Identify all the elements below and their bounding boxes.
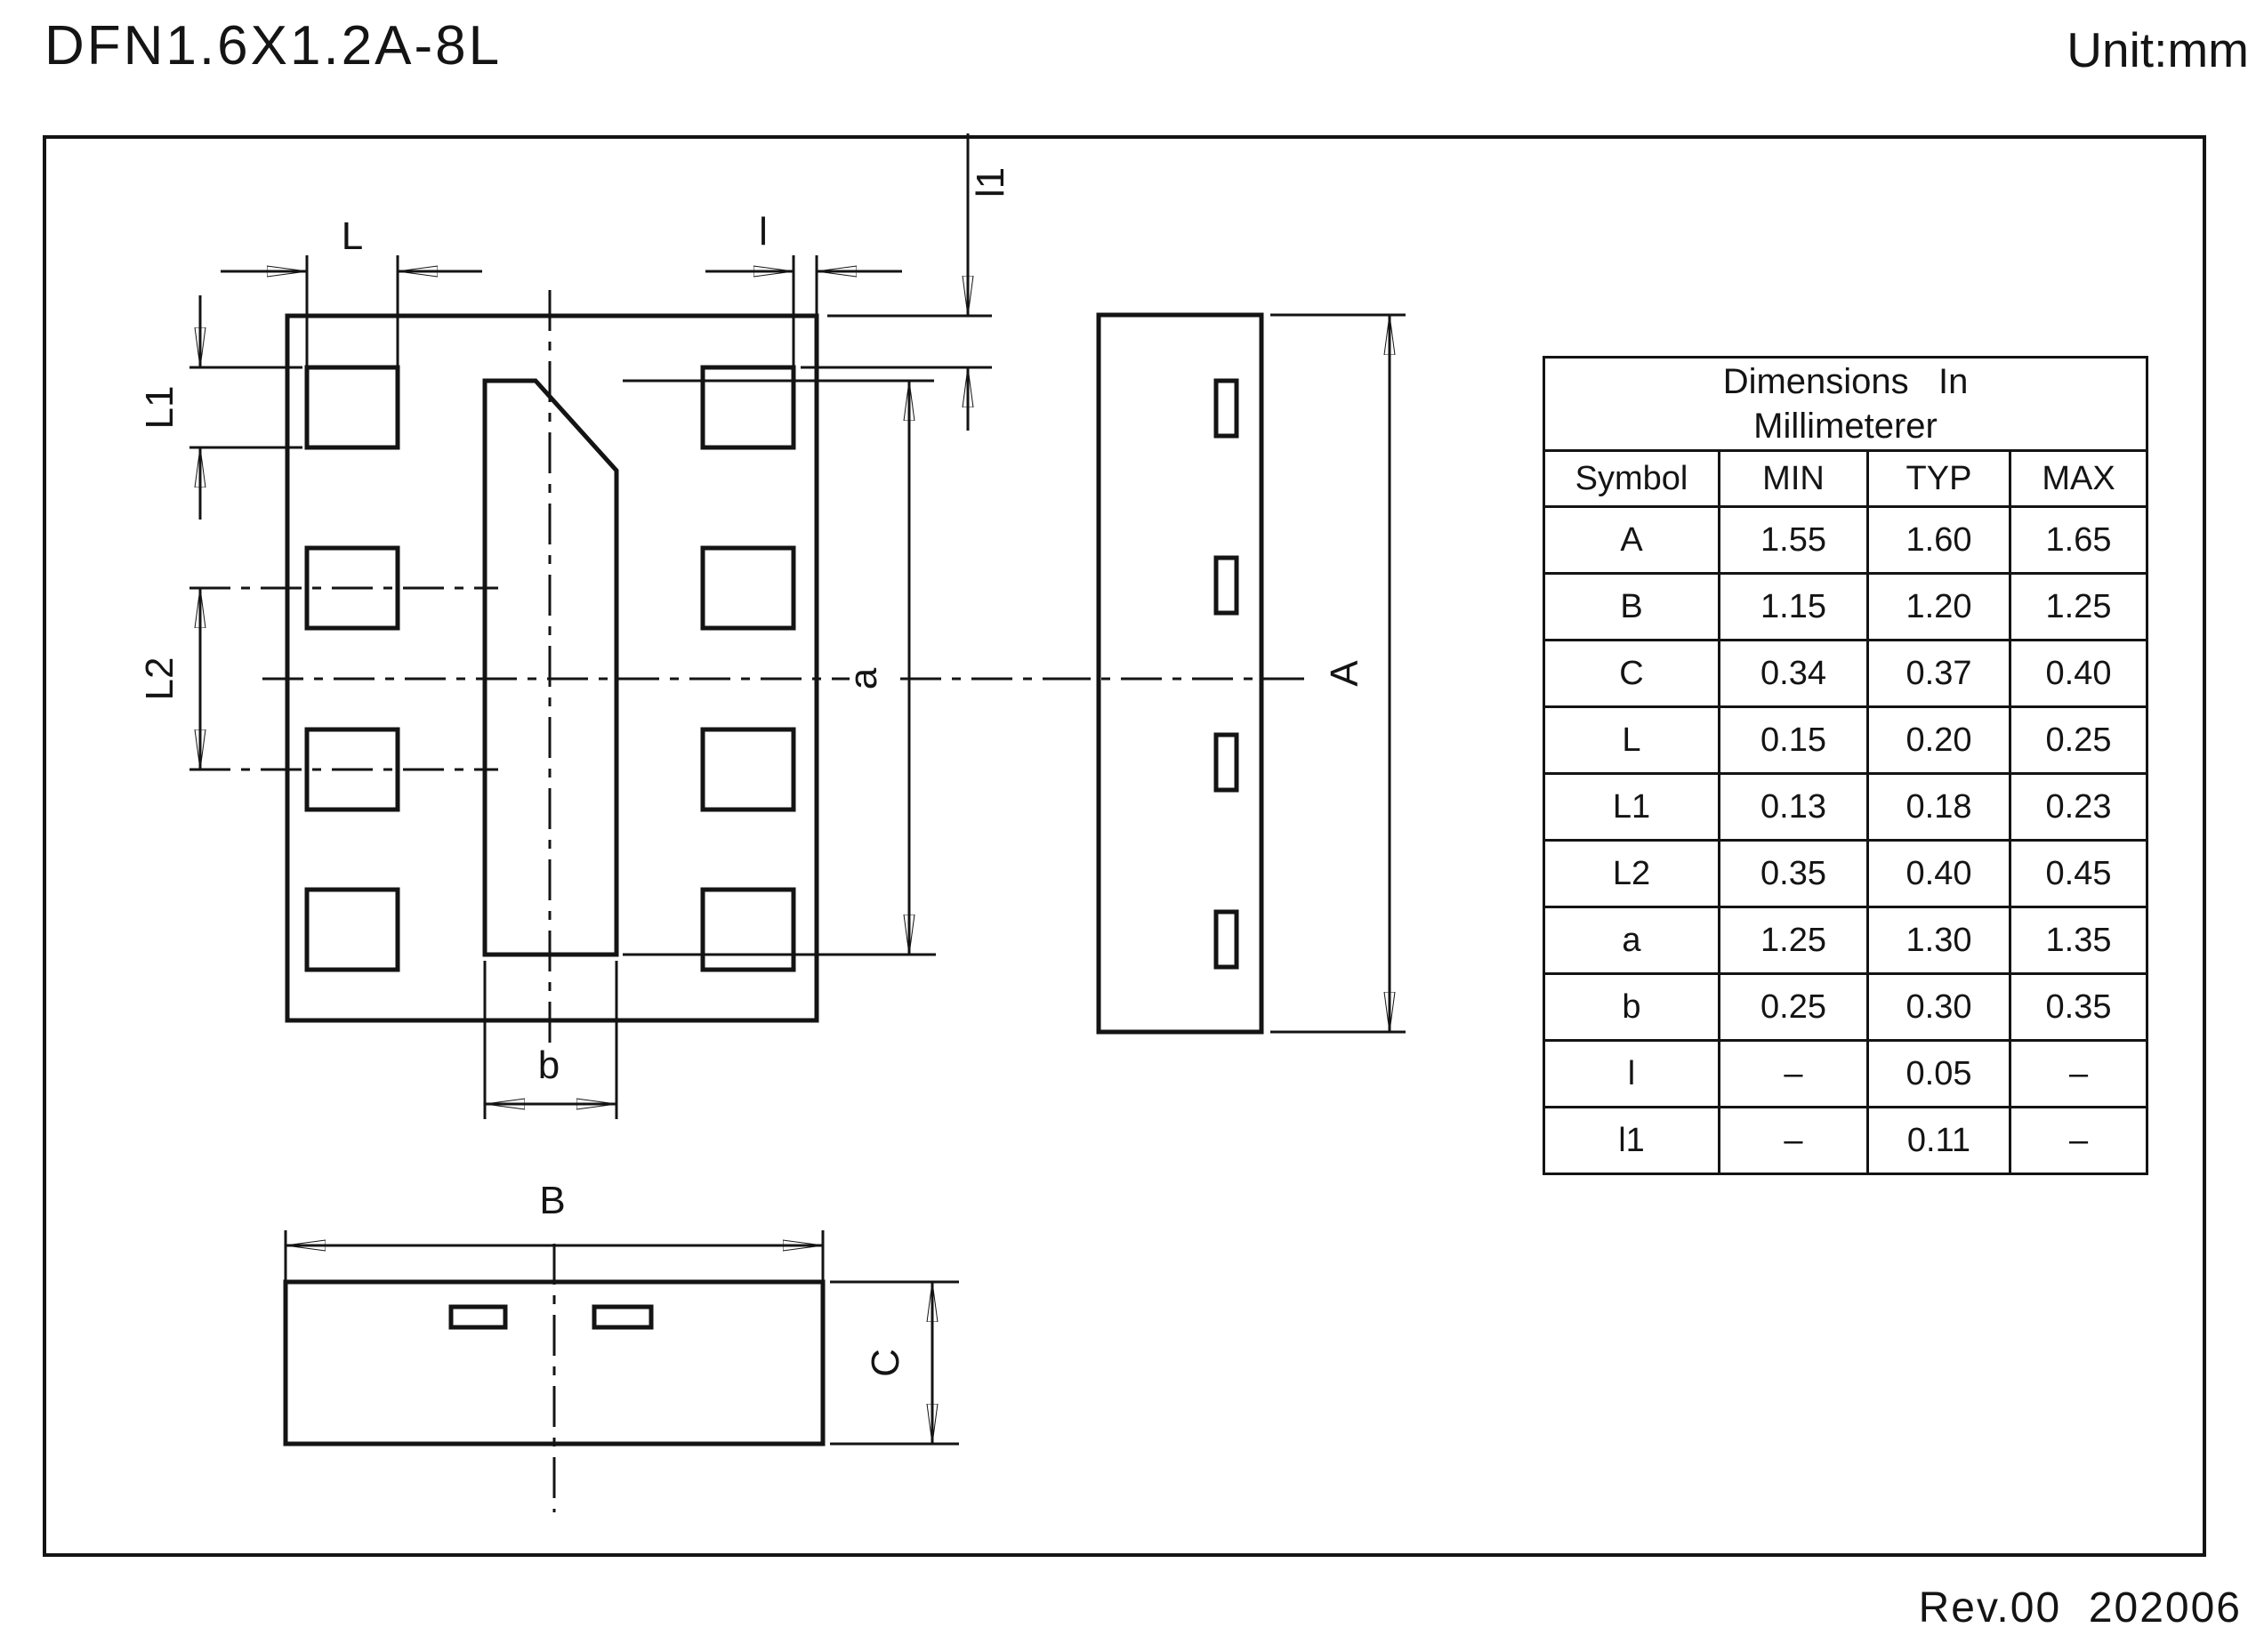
table-cell: 0.25 bbox=[2010, 707, 2147, 774]
dim-label-l: l bbox=[759, 210, 768, 254]
table-cell: l bbox=[1544, 1041, 1720, 1108]
table-row: L2 0.35 0.40 0.45 bbox=[1544, 841, 2147, 907]
bottom-pad bbox=[451, 1307, 505, 1327]
table-cell: 1.65 bbox=[2010, 507, 2147, 574]
dim-label-L1: L1 bbox=[138, 386, 181, 430]
pad bbox=[703, 548, 794, 628]
dim-L1: L1 bbox=[138, 295, 302, 520]
revision-label: Rev.00 202006 bbox=[1919, 1584, 2242, 1632]
table-cell: 0.15 bbox=[1720, 707, 1868, 774]
table-row: B 1.15 1.20 1.25 bbox=[1544, 574, 2147, 641]
table-row: a 1.25 1.30 1.35 bbox=[1544, 907, 2147, 974]
pad bbox=[307, 367, 398, 447]
dim-L: L bbox=[221, 214, 482, 367]
bottom-view bbox=[286, 1244, 823, 1512]
table-cell: B bbox=[1544, 574, 1720, 641]
dim-label-C: C bbox=[864, 1349, 907, 1377]
column-header-min: MIN bbox=[1720, 451, 1868, 507]
table-cell: 0.05 bbox=[1868, 1041, 2010, 1108]
table-cell: 0.35 bbox=[2010, 974, 2147, 1041]
table-cell: 0.30 bbox=[1868, 974, 2010, 1041]
table-cell: – bbox=[1720, 1041, 1868, 1108]
side-pad bbox=[1216, 381, 1237, 436]
table-header-row: Symbol MIN TYP MAX bbox=[1544, 451, 2147, 507]
dim-label-A: A bbox=[1323, 660, 1366, 687]
package-outline bbox=[287, 316, 817, 1020]
table-cell: 1.20 bbox=[1868, 574, 2010, 641]
bottom-pad bbox=[594, 1307, 651, 1327]
table-cell: 0.18 bbox=[1868, 774, 2010, 841]
table-cell: 1.60 bbox=[1868, 507, 2010, 574]
table-row: b 0.25 0.30 0.35 bbox=[1544, 974, 2147, 1041]
dim-label-a: a bbox=[842, 667, 885, 689]
dim-l1: l1 bbox=[801, 133, 1012, 431]
table-cell: 0.40 bbox=[1868, 841, 2010, 907]
table-cell: – bbox=[2010, 1108, 2147, 1174]
table-caption-line2: Millimeterer bbox=[1545, 404, 2146, 448]
table-cell: 0.25 bbox=[1720, 974, 1868, 1041]
dim-l: l bbox=[705, 210, 902, 367]
table-cell: 1.25 bbox=[1720, 907, 1868, 974]
table-row: A 1.55 1.60 1.65 bbox=[1544, 507, 2147, 574]
table-cell: L bbox=[1544, 707, 1720, 774]
table-cell: 0.20 bbox=[1868, 707, 2010, 774]
table-row: l1 – 0.11 – bbox=[1544, 1108, 2147, 1174]
table-cell: b bbox=[1544, 974, 1720, 1041]
column-header-max: MAX bbox=[2010, 451, 2147, 507]
table-cell: L2 bbox=[1544, 841, 1720, 907]
table-cell: 1.55 bbox=[1720, 507, 1868, 574]
table-row: l – 0.05 – bbox=[1544, 1041, 2147, 1108]
table-caption: Dimensions In Millimeterer bbox=[1544, 358, 2147, 451]
table-cell: L1 bbox=[1544, 774, 1720, 841]
side-view bbox=[1050, 315, 1312, 1032]
side-pad bbox=[1216, 912, 1237, 967]
table-cell: A bbox=[1544, 507, 1720, 574]
pad bbox=[703, 729, 794, 810]
table-cell: 0.37 bbox=[1868, 641, 2010, 707]
dim-label-L: L bbox=[342, 214, 363, 258]
dim-label-L2: L2 bbox=[138, 657, 181, 701]
table-cell: l1 bbox=[1544, 1108, 1720, 1174]
table-cell: 0.35 bbox=[1720, 841, 1868, 907]
table-cell: – bbox=[1720, 1108, 1868, 1174]
table-cell: 0.11 bbox=[1868, 1108, 2010, 1174]
table-cell: 0.23 bbox=[2010, 774, 2147, 841]
column-header-symbol: Symbol bbox=[1544, 451, 1720, 507]
dim-label-B: B bbox=[539, 1179, 565, 1222]
top-view bbox=[189, 290, 1054, 1043]
drawing-sheet: DFN1.6X1.2A-8L Unit:mm bbox=[0, 0, 2256, 1652]
column-header-typ: TYP bbox=[1868, 451, 2010, 507]
dim-L2: L2 bbox=[138, 588, 200, 770]
table-cell: – bbox=[2010, 1041, 2147, 1108]
table-cell: C bbox=[1544, 641, 1720, 707]
dimensions-table: Dimensions In Millimeterer Symbol MIN TY… bbox=[1543, 356, 2148, 1175]
table-caption-line1: Dimensions In bbox=[1545, 359, 2146, 404]
table-cell: 1.25 bbox=[2010, 574, 2147, 641]
table-cell: 0.13 bbox=[1720, 774, 1868, 841]
table-cell: 1.35 bbox=[2010, 907, 2147, 974]
side-pad bbox=[1216, 558, 1237, 613]
table-cell: 1.15 bbox=[1720, 574, 1868, 641]
table-cell: 0.45 bbox=[2010, 841, 2147, 907]
dim-C: C bbox=[830, 1282, 959, 1444]
pad bbox=[307, 890, 398, 970]
table-cell: 1.30 bbox=[1868, 907, 2010, 974]
table-caption-row: Dimensions In Millimeterer bbox=[1544, 358, 2147, 451]
table-row: C 0.34 0.37 0.40 bbox=[1544, 641, 2147, 707]
table-row: L 0.15 0.20 0.25 bbox=[1544, 707, 2147, 774]
table-cell: 0.34 bbox=[1720, 641, 1868, 707]
table-cell: a bbox=[1544, 907, 1720, 974]
pad bbox=[703, 890, 794, 970]
table-cell: 0.40 bbox=[2010, 641, 2147, 707]
side-pad bbox=[1216, 735, 1237, 790]
dim-label-l1: l1 bbox=[969, 167, 1012, 197]
table-row: L1 0.13 0.18 0.23 bbox=[1544, 774, 2147, 841]
dim-A: A bbox=[1270, 315, 1406, 1032]
dim-a: a bbox=[623, 381, 936, 955]
dim-label-b: b bbox=[538, 1044, 560, 1087]
